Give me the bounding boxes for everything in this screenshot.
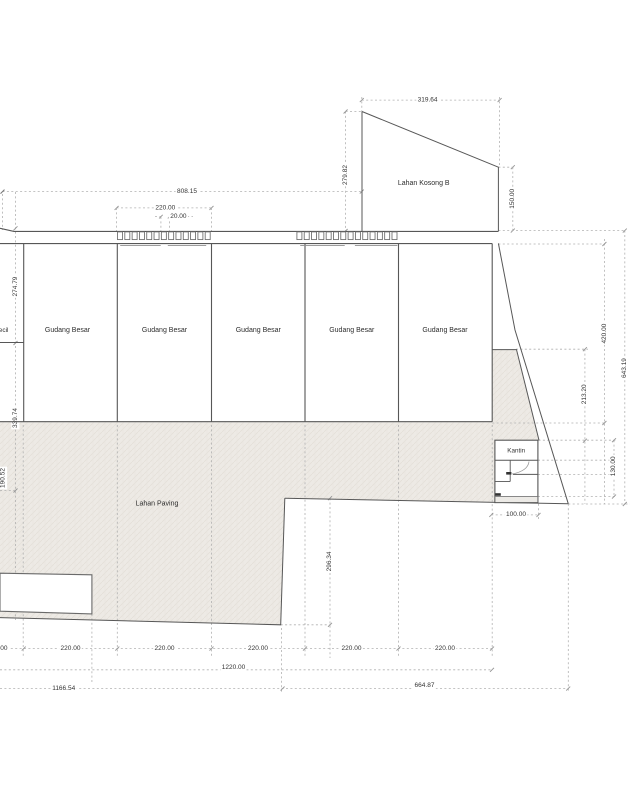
svg-text:279.82: 279.82: [342, 165, 349, 185]
svg-text:220.00: 220.00: [248, 645, 268, 652]
svg-text:339.74: 339.74: [12, 408, 19, 428]
svg-text:Kantin: Kantin: [507, 447, 525, 454]
svg-text:Gudang Besar: Gudang Besar: [422, 327, 468, 334]
svg-text:220.00: 220.00: [435, 645, 455, 652]
svg-text:213.20: 213.20: [581, 384, 588, 404]
svg-text:220.00: 220.00: [342, 645, 362, 652]
svg-text:420.00: 420.00: [601, 323, 608, 343]
svg-text:1220.00: 1220.00: [222, 664, 246, 671]
svg-text:296.34: 296.34: [326, 551, 333, 571]
svg-text:100.00: 100.00: [506, 511, 526, 518]
svg-text:150.00: 150.00: [509, 188, 516, 208]
svg-text:643.19: 643.19: [621, 358, 628, 378]
svg-text:Lahan Paving: Lahan Paving: [136, 501, 179, 508]
svg-text:1166.54: 1166.54: [52, 685, 75, 692]
svg-text:20.00: 20.00: [170, 213, 187, 220]
svg-text:274.79: 274.79: [12, 276, 19, 296]
svg-text:664.87: 664.87: [415, 682, 435, 689]
svg-text:Gudang Besar: Gudang Besar: [236, 327, 282, 334]
svg-text:220.00: 220.00: [0, 645, 8, 652]
svg-text:Lahan Kosong B: Lahan Kosong B: [398, 180, 450, 187]
svg-text:Gudang Kecil: Gudang Kecil: [0, 327, 9, 334]
svg-text:319.64: 319.64: [418, 96, 438, 103]
svg-text:190.52: 190.52: [0, 468, 7, 488]
svg-text:Gudang Besar: Gudang Besar: [45, 327, 91, 334]
svg-text:Gudang Besar: Gudang Besar: [142, 327, 188, 334]
svg-text:220.00: 220.00: [61, 645, 81, 652]
svg-text:220.00: 220.00: [155, 645, 175, 652]
svg-text:220.00: 220.00: [155, 204, 175, 211]
svg-text:Gudang Besar: Gudang Besar: [329, 327, 375, 334]
svg-text:130.00: 130.00: [610, 456, 617, 476]
svg-text:808.15: 808.15: [177, 188, 197, 195]
